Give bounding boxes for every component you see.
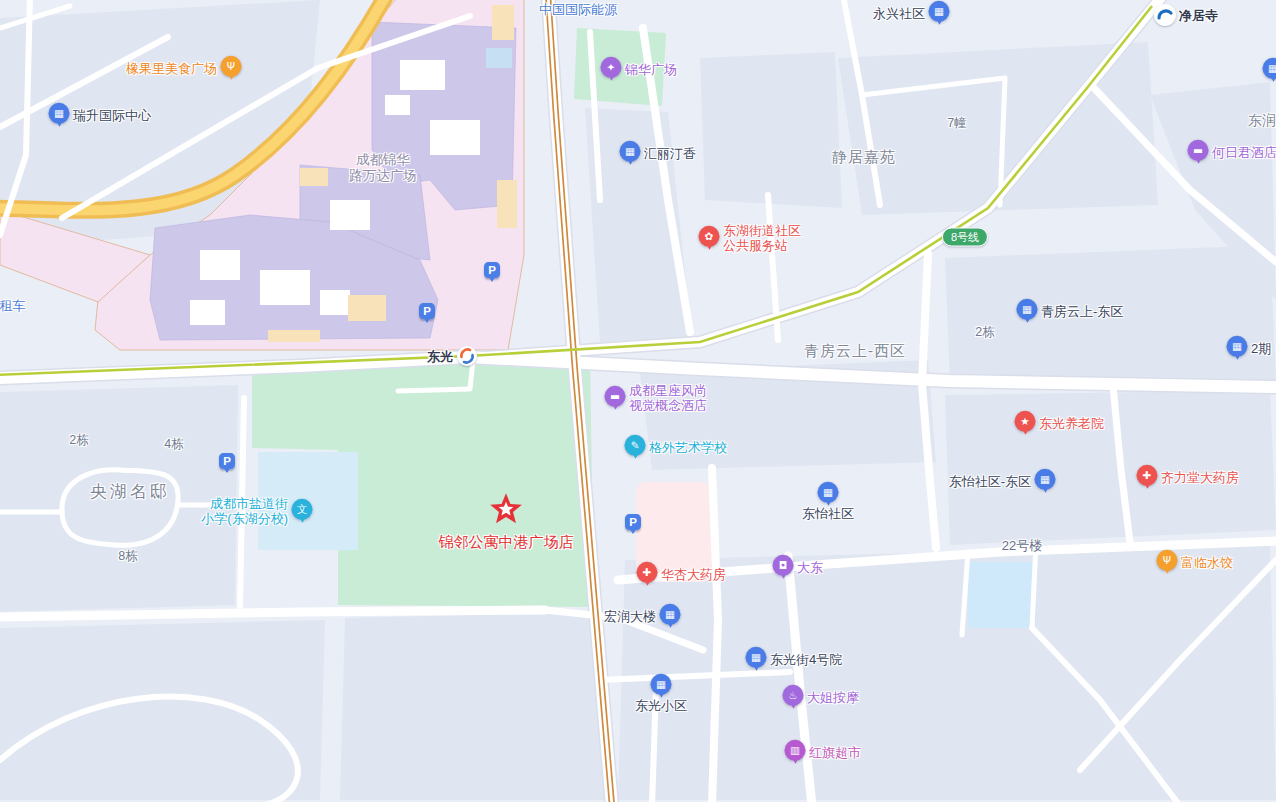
building-pin-icon[interactable]: ▦	[818, 482, 839, 503]
poi-qingfang-yunshang-east-label[interactable]: 青房云上-东区	[1041, 304, 1123, 319]
school-pencil-pin-icon[interactable]: ✎	[625, 435, 646, 456]
map-canvas[interactable]: Ψ橡果里美食广场▦瑞升国际中心中国国际能源✦锦华广场▦永兴社区净居寺▦东润▬何日…	[0, 0, 1276, 802]
poi-dongguang-xiaoqu-label[interactable]: 东光小区	[635, 698, 687, 713]
label-22haolou-label: 22号楼	[1002, 538, 1042, 553]
massage-pin-icon[interactable]: ♨	[783, 685, 804, 706]
poi-fulin-dumplings-label[interactable]: 富临水饺	[1181, 555, 1233, 570]
poi-qilitang-pharmacy-label[interactable]: 齐力堂大药房	[1161, 470, 1239, 485]
building-pin-icon[interactable]: ▦	[1263, 58, 1276, 79]
poi-yandaojie-primary-school-label[interactable]: 成都市盐道街小学(东湖分校)	[201, 496, 288, 526]
label-2dong-right-label: 2栋	[975, 325, 994, 340]
shopping-cart-pin-icon[interactable]: ▥	[785, 740, 806, 761]
poi-2qi-label[interactable]: 2期	[1251, 341, 1271, 356]
parking-icon[interactable]: P	[219, 453, 235, 469]
building-pin-icon[interactable]: ▦	[660, 604, 681, 625]
label-4dong-label: 4栋	[164, 437, 183, 452]
building-pin-icon[interactable]: ▦	[620, 141, 641, 162]
poi-donghu-street-community-service-label[interactable]: 东湖街道社区公共服务站	[723, 223, 801, 253]
poi-jinlin-apartment-star-label[interactable]: 锦邻公寓中港广场店	[439, 533, 574, 551]
star-pin-icon[interactable]: ★	[1015, 411, 1036, 432]
label-qingfang-yunshang-west-label: 青房云上-西区	[804, 342, 906, 360]
building-pin-icon[interactable]: ▦	[929, 1, 950, 22]
poi-dadong-label[interactable]: 大东	[797, 560, 823, 575]
poi-jingjusi-metro-station-label[interactable]: 净居寺	[1179, 8, 1218, 23]
label-china-intl-energy-label: 中国国际能源	[539, 2, 617, 17]
building-pin-icon[interactable]: ▦	[49, 103, 70, 124]
poi-layer: Ψ橡果里美食广场▦瑞升国际中心中国国际能源✦锦华广场▦永兴社区净居寺▦东润▬何日…	[0, 0, 1276, 802]
poi-gewai-art-school-label[interactable]: 格外艺术学校	[649, 440, 727, 455]
poi-ruisheng-intl-center-label[interactable]: 瑞升国际中心	[73, 108, 151, 123]
building-pin-icon[interactable]: ▦	[1017, 299, 1038, 320]
label-zuche-label: 宇租车	[0, 298, 26, 313]
label-7zhuang-label: 7幢	[947, 116, 966, 131]
label-wanda-plaza-label: 成都锦华路万达广场	[349, 152, 417, 184]
poi-huaxing-pharmacy-label[interactable]: 华杏大药房	[661, 567, 726, 582]
poi-huili-tingxiang-label[interactable]: 汇丽汀香	[644, 146, 696, 161]
shopping-bag-pin-icon[interactable]: ◘	[773, 555, 794, 576]
poi-heriju-hotel-label[interactable]: 何日君酒店	[1212, 145, 1276, 160]
parking-icon[interactable]: P	[484, 262, 500, 278]
poi-dongguangjie-4th-yard-label[interactable]: 东光街4号院	[770, 652, 842, 667]
poi-hongqi-supermarket-label[interactable]: 红旗超市	[809, 745, 861, 760]
label-dongrun-label: 东润	[1248, 112, 1276, 129]
label-8dong-label: 8栋	[118, 549, 137, 564]
building-pin-icon[interactable]: ▦	[651, 674, 672, 695]
label-2dong-left-label: 2栋	[69, 433, 88, 448]
poi-jinhua-plaza-label[interactable]: 锦华广场	[625, 62, 677, 77]
label-yanghu-mingdi-label: 央湖名邸	[90, 482, 170, 502]
pharmacy-pin-icon[interactable]: ✚	[1137, 465, 1158, 486]
poi-yongxing-community-label[interactable]: 永兴社区	[873, 6, 925, 21]
hotel-bed-pin-icon[interactable]: ▬	[1188, 140, 1209, 161]
label-jingju-jiayuan-label: 静居嘉苑	[832, 148, 896, 166]
plaza-pin-icon[interactable]: ✦	[601, 57, 622, 78]
building-pin-icon[interactable]: ▦	[1227, 336, 1248, 357]
poi-dongyi-community-east-label[interactable]: 东怡社区-东区	[949, 474, 1031, 489]
flower-pin-icon[interactable]: ✿	[699, 226, 720, 247]
school-wen-pin-icon[interactable]: 文	[292, 499, 313, 520]
hotel-bed-pin-icon[interactable]: ▬	[605, 386, 626, 407]
parking-icon[interactable]: P	[419, 303, 435, 319]
dongguang-loop-station-icon[interactable]	[457, 346, 477, 366]
metro-station-icon[interactable]	[1154, 4, 1176, 26]
poi-dongguang-station-label[interactable]: 东光	[427, 349, 453, 364]
poi-xingzuo-fashion-hotel-label[interactable]: 成都星座风尚视觉概念酒店	[629, 383, 707, 413]
food-pin-icon[interactable]: Ψ	[1157, 550, 1178, 571]
red-star-marker-icon[interactable]	[489, 492, 523, 530]
pharmacy-pin-icon[interactable]: ✚	[637, 562, 658, 583]
poi-dongguang-nursing-home-label[interactable]: 东光养老院	[1039, 416, 1104, 431]
poi-xiangguoli-food-plaza-label[interactable]: 橡果里美食广场	[126, 61, 217, 76]
building-pin-icon[interactable]: ▦	[746, 647, 767, 668]
poi-hongrun-building-label[interactable]: 宏润大楼	[604, 609, 656, 624]
poi-dajie-massage-label[interactable]: 大姐按摩	[807, 690, 859, 705]
metro-line8-badge[interactable]: 8号线	[942, 228, 988, 247]
food-pin-icon[interactable]: Ψ	[221, 56, 242, 77]
parking-icon[interactable]: P	[625, 514, 641, 530]
poi-dongyi-community-label[interactable]: 东怡社区	[802, 506, 854, 521]
building-pin-icon[interactable]: ▦	[1035, 469, 1056, 490]
